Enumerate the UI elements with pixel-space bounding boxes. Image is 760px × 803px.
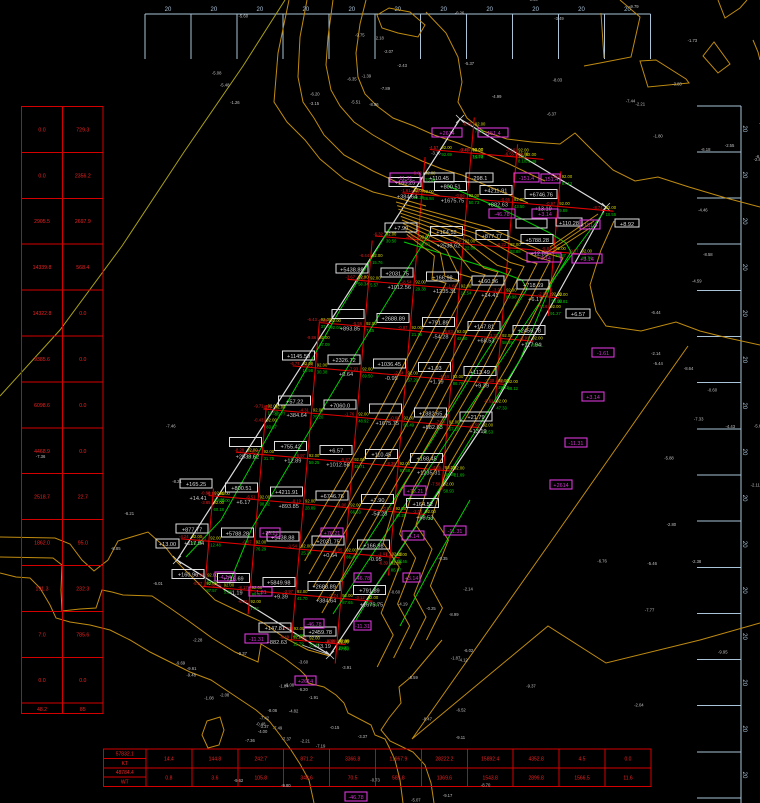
svg-text:1566.5: 1566.5 [574,776,590,782]
svg-text:12.54: 12.54 [461,291,472,296]
svg-text:-8.68: -8.68 [211,583,221,588]
svg-text:-9.79: -9.79 [629,4,639,9]
svg-text:-0.87: -0.87 [242,540,252,545]
svg-text:-6.35: -6.35 [347,76,357,81]
svg-text:20: 20 [741,449,747,456]
svg-text:47.33: 47.33 [496,406,507,411]
svg-text:144.8: 144.8 [209,757,222,763]
svg-text:-46.78: -46.78 [494,212,509,218]
svg-text:-6.85: -6.85 [318,318,328,323]
svg-text:-9.80: -9.80 [281,783,291,788]
svg-text:-8.19: -8.19 [291,498,301,503]
svg-text:5.57: 5.57 [370,283,379,288]
svg-text:105.8: 105.8 [255,776,268,782]
svg-text:92.00: 92.00 [532,336,543,341]
svg-text:+755.42: +755.42 [281,445,301,451]
svg-text:-4.05: -4.05 [333,548,343,553]
svg-text:-4.85: -4.85 [431,465,441,470]
svg-text:-6.44: -6.44 [651,310,661,315]
svg-text:-7.16: -7.16 [538,304,548,309]
svg-text:20: 20 [741,633,747,640]
svg-text:+1.93: +1.93 [428,366,442,372]
svg-text:-4.09: -4.09 [513,152,523,157]
svg-text:20: 20 [741,126,747,133]
svg-text:-9.37: -9.37 [526,683,536,688]
svg-text:92.00: 92.00 [317,362,328,367]
svg-text:-5.48: -5.48 [220,83,230,88]
svg-text:98.32: 98.32 [260,501,271,506]
svg-text:-1.15: -1.15 [384,552,394,557]
svg-text:92.00: 92.00 [247,448,258,453]
svg-text:58.39: 58.39 [502,340,513,345]
svg-text:-2.14: -2.14 [651,351,661,356]
svg-text:14339.8: 14339.8 [33,265,52,271]
svg-text:29.38: 29.38 [415,287,426,292]
svg-text:-7.89: -7.89 [381,86,391,91]
svg-text:-4.82: -4.82 [289,708,299,713]
svg-text:-5.07: -5.07 [411,798,421,803]
svg-text:86.76: 86.76 [453,381,464,386]
svg-text:-9.48: -9.48 [186,672,196,677]
svg-text:-6.83: -6.83 [443,329,453,334]
svg-text:48.2: 48.2 [37,707,47,713]
svg-text:92.00: 92.00 [414,188,425,193]
svg-text:+6.57: +6.57 [329,449,343,455]
svg-text:-3.15: -3.15 [310,101,320,106]
svg-text:20: 20 [741,587,747,594]
svg-text:-2.04: -2.04 [634,702,644,707]
svg-text:+882.63: +882.63 [488,202,508,208]
svg-text:-0.87: -0.87 [398,325,408,330]
svg-text:-1.49: -1.49 [451,238,461,243]
svg-text:31.75: 31.75 [264,456,275,461]
svg-text:+164.52: +164.52 [413,502,433,508]
svg-text:92.00: 92.00 [309,636,320,641]
svg-text:-1.91: -1.91 [309,695,319,700]
svg-text:-8.54: -8.54 [402,280,412,285]
svg-text:-2.08: -2.08 [220,693,230,698]
svg-text:-6.21: -6.21 [125,511,135,516]
svg-text:-0.43: -0.43 [254,418,264,423]
svg-text:0.0: 0.0 [79,403,86,409]
svg-text:0.8: 0.8 [165,776,172,782]
svg-text:74.83: 74.83 [472,154,484,159]
svg-text:92.00: 92.00 [301,544,312,549]
svg-text:-6.75: -6.75 [462,122,472,127]
svg-text:+160.96: +160.96 [478,279,498,285]
svg-text:-4.31: -4.31 [299,408,309,413]
svg-text:-4.00: -4.00 [337,502,347,507]
svg-text:-9.11: -9.11 [456,735,466,740]
svg-text:-11.31: -11.31 [398,176,413,182]
svg-text:22.88: 22.88 [465,245,476,250]
svg-text:92.00: 92.00 [443,482,454,487]
svg-text:20: 20 [741,772,747,779]
svg-text:+2614: +2614 [553,483,568,489]
svg-text:92.00: 92.00 [562,174,573,179]
svg-text:92.00: 92.00 [415,280,426,285]
svg-text:-2.11: -2.11 [751,482,760,487]
svg-text:-151.4: -151.4 [543,177,558,183]
svg-text:-6.31: -6.31 [238,599,248,604]
svg-text:+2688.89: +2688.89 [381,317,405,323]
svg-text:+12.89: +12.89 [284,459,301,465]
svg-text:+165.25: +165.25 [186,482,206,488]
svg-text:-8.56: -8.56 [470,423,480,428]
svg-text:-6.52: -6.52 [456,707,466,712]
svg-text:-4.14: -4.14 [219,575,231,581]
svg-text:+68.53: +68.53 [416,516,433,522]
svg-text:-8.17: -8.17 [238,585,248,590]
svg-text:+0.64: +0.64 [339,372,353,378]
svg-text:-6.74: -6.74 [290,361,300,366]
svg-text:20: 20 [741,172,747,179]
svg-text:-5.61: -5.61 [754,423,760,428]
svg-text:0.0: 0.0 [38,173,45,179]
svg-text:92.00: 92.00 [496,399,507,404]
svg-text:4352.8: 4352.8 [528,757,544,763]
svg-text:-9.61: -9.61 [187,666,197,671]
svg-text:92.00: 92.00 [362,366,373,371]
svg-text:-5.34: -5.34 [439,374,449,379]
svg-text:-2.38: -2.38 [692,559,702,564]
svg-text:21.18: 21.18 [412,332,423,337]
svg-text:92.00: 92.00 [251,599,262,604]
svg-text:-5.87: -5.87 [341,457,351,462]
svg-text:11967.9: 11967.9 [390,757,408,763]
svg-text:-8.52: -8.52 [495,379,505,384]
svg-text:+117.94: +117.94 [184,541,204,547]
svg-text:+110.45: +110.45 [371,453,391,459]
svg-text:-1.39: -1.39 [362,73,372,78]
svg-text:10.55: 10.55 [606,212,617,217]
svg-text:92.00: 92.00 [557,292,568,297]
svg-text:-5.88: -5.88 [664,455,674,460]
svg-text:-8.64: -8.64 [684,366,694,371]
svg-text:20: 20 [303,7,310,13]
svg-text:-9.62: -9.62 [234,778,244,783]
svg-text:-7.15: -7.15 [441,466,451,471]
svg-text:20: 20 [578,7,585,13]
svg-text:568.4: 568.4 [76,265,89,271]
svg-text:47.09: 47.09 [319,342,330,347]
svg-text:92.00: 92.00 [207,572,218,577]
svg-text:-5.46: -5.46 [647,561,657,566]
svg-text:20: 20 [348,7,355,13]
svg-text:-0.97: -0.97 [546,201,556,206]
svg-text:56.77: 56.77 [275,411,286,416]
svg-text:2899.8: 2899.8 [528,776,544,782]
svg-text:59.25: 59.25 [309,460,320,465]
svg-text:-9.49: -9.49 [280,634,290,639]
svg-text:+13.00: +13.00 [159,542,176,548]
svg-text:-151.4: -151.4 [519,176,534,182]
svg-text:+1675.75: +1675.75 [376,421,400,427]
svg-text:-3.26: -3.26 [493,288,503,293]
svg-text:+6.57: +6.57 [571,312,585,318]
svg-text:+4211.91: +4211.91 [275,490,298,496]
svg-text:-6.51: -6.51 [246,494,256,499]
svg-text:+110.45: +110.45 [429,176,449,182]
svg-text:92.00: 92.00 [303,361,314,366]
svg-text:-4.99: -4.99 [492,94,502,99]
svg-text:57.29: 57.29 [408,377,419,382]
svg-text:+6746.76: +6746.76 [320,494,344,500]
svg-text:-6.44: -6.44 [360,253,370,258]
svg-text:92.00: 92.00 [266,418,277,423]
svg-text:-2.80: -2.80 [667,522,677,527]
svg-text:25.27: 25.27 [301,551,312,556]
svg-text:7.15: 7.15 [366,328,375,333]
svg-text:-2.80: -2.80 [754,157,760,162]
svg-text:92.00: 92.00 [526,152,537,157]
svg-text:92.00: 92.00 [419,234,430,239]
svg-text:92.69: 92.69 [441,152,452,157]
svg-text:92.00: 92.00 [457,329,468,334]
svg-text:+68.53: +68.53 [477,338,494,344]
svg-text:+5788.28: +5788.28 [226,531,250,537]
svg-text:58.93: 58.93 [443,489,454,494]
svg-text:-5.37: -5.37 [465,61,475,66]
svg-text:232.3: 232.3 [76,587,89,593]
svg-text:92.00: 92.00 [370,276,381,281]
svg-text:92.00: 92.00 [372,253,383,258]
svg-text:92.00: 92.00 [313,408,324,413]
svg-text:20: 20 [440,7,447,13]
svg-text:+877.77: +877.77 [182,527,202,533]
svg-text:+1012.56: +1012.56 [387,285,411,291]
svg-text:92.00: 92.00 [397,552,408,557]
svg-text:+21.79: +21.79 [467,415,484,421]
svg-text:+76.21: +76.21 [262,531,279,537]
svg-text:-8.85: -8.85 [111,546,121,551]
svg-text:+7.90: +7.90 [394,226,408,232]
svg-text:1369.6: 1369.6 [437,776,453,782]
svg-text:-3.60: -3.60 [299,660,309,665]
svg-text:86.40: 86.40 [346,555,357,560]
svg-text:-8.99: -8.99 [449,612,459,617]
svg-text:-1.76: -1.76 [345,412,355,417]
svg-text:-46.78: -46.78 [348,795,363,801]
svg-text:6098.6: 6098.6 [34,403,50,409]
svg-text:5.40: 5.40 [339,645,348,650]
svg-text:58.34: 58.34 [358,282,369,287]
svg-text:0.0: 0.0 [79,449,86,455]
svg-text:-5.51: -5.51 [351,99,361,104]
svg-text:4.5: 4.5 [579,757,586,763]
svg-text:-7.36: -7.36 [36,454,46,459]
svg-text:-3.04: -3.04 [413,509,423,514]
svg-text:66.49: 66.49 [404,423,415,428]
svg-text:20: 20 [532,7,539,13]
svg-text:92.00: 92.00 [465,238,476,243]
svg-text:+882.63: +882.63 [422,425,442,431]
svg-text:-5.44: -5.44 [653,361,663,366]
svg-text:-2.97: -2.97 [283,589,293,594]
svg-text:+1882.65: +1882.65 [419,411,443,417]
svg-text:-4.43: -4.43 [726,424,736,429]
svg-text:92.00: 92.00 [469,193,480,198]
svg-text:2356.2: 2356.2 [75,173,91,179]
svg-text:20: 20 [257,7,264,13]
svg-text:92.00: 92.00 [423,189,434,194]
svg-text:+4211.91: +4211.91 [484,189,507,195]
svg-text:2518.7: 2518.7 [34,495,50,501]
svg-text:7.42: 7.42 [251,606,260,611]
svg-text:+384.64: +384.64 [287,413,307,419]
svg-text:16.98: 16.98 [303,368,314,373]
svg-text:+7.90: +7.90 [370,498,384,504]
svg-text:+5788.28: +5788.28 [525,238,549,244]
svg-text:-7.58: -7.58 [431,482,441,487]
svg-text:+1675.75: +1675.75 [360,602,384,608]
svg-text:+2614: +2614 [439,131,454,137]
svg-text:-6.18: -6.18 [701,147,711,152]
svg-text:+3.14: +3.14 [580,257,594,263]
svg-text:-3.32: -3.32 [489,333,499,338]
svg-text:92.00: 92.00 [260,494,271,499]
svg-text:-6.02: -6.02 [464,648,474,653]
svg-text:+2459.78: +2459.78 [308,630,332,636]
svg-text:-4.14: -4.14 [407,534,419,540]
svg-text:92.00: 92.00 [358,275,369,280]
svg-text:-2.28: -2.28 [193,638,203,643]
svg-text:86.07: 86.07 [391,568,402,573]
svg-text:95.0: 95.0 [78,541,88,547]
svg-text:92.00: 92.00 [510,242,521,247]
svg-text:87.57: 87.57 [206,588,217,593]
svg-text:+384.64: +384.64 [397,195,417,201]
svg-text:-8.61: -8.61 [484,399,494,404]
svg-text:+3.14: +3.14 [405,576,419,582]
svg-text:-1.68: -1.68 [447,284,457,289]
svg-text:+6.17: +6.17 [528,297,542,303]
svg-text:92.00: 92.00 [396,506,407,511]
svg-text:83.07: 83.07 [266,425,277,430]
svg-text:20: 20 [741,402,747,409]
svg-text:-5.57: -5.57 [193,581,203,586]
svg-text:92.00: 92.00 [366,321,377,326]
svg-text:+2326.72: +2326.72 [332,358,356,364]
svg-text:80.98: 80.98 [506,295,517,300]
svg-text:92.00: 92.00 [412,325,423,330]
svg-text:-54.28: -54.28 [433,334,449,340]
svg-text:20: 20 [165,7,172,13]
svg-text:20: 20 [211,7,218,13]
svg-text:69.50: 69.50 [362,373,373,378]
svg-text:92.00: 92.00 [192,534,203,539]
svg-text:0.0: 0.0 [625,757,632,763]
svg-text:-11.31: -11.31 [249,637,264,643]
svg-text:+2538.62: +2538.62 [437,244,461,250]
svg-text:-7.20: -7.20 [297,636,307,641]
svg-text:+5438.88: +5438.88 [340,267,364,273]
svg-text:30.38: 30.38 [317,369,328,374]
svg-text:+160.96: +160.96 [178,573,198,579]
svg-text:92.00: 92.00 [472,147,484,152]
svg-text:45.71: 45.71 [354,464,365,469]
svg-text:-0.66: -0.66 [500,197,510,202]
svg-text:-3.37: -3.37 [358,734,368,739]
svg-text:-2.21: -2.21 [636,102,646,107]
svg-text:-5.56: -5.56 [353,321,363,326]
svg-text:+57.22: +57.22 [286,399,303,405]
svg-text:-6.97: -6.97 [295,453,305,458]
svg-text:+117.94: +117.94 [521,342,541,348]
svg-text:+76.21: +76.21 [324,531,341,537]
svg-text:-6.20: -6.20 [326,638,336,643]
svg-text:-7.49: -7.49 [273,726,283,731]
svg-text:-7.77: -7.77 [645,607,655,612]
svg-text:+110.28: +110.28 [559,221,579,227]
svg-text:+168.45: +168.45 [417,457,437,463]
svg-text:+1145.59: +1145.59 [287,354,310,360]
svg-text:87.12: 87.12 [562,181,573,186]
svg-text:-11.31: -11.31 [355,624,370,630]
svg-text:-8.03: -8.03 [553,78,563,83]
svg-text:+9.39: +9.39 [274,595,288,601]
svg-text:-9.37: -9.37 [237,651,247,656]
svg-text:-9.75: -9.75 [355,33,365,38]
svg-text:-0.26: -0.26 [455,11,465,16]
svg-text:92.00: 92.00 [606,205,617,210]
svg-text:+9.39: +9.39 [475,384,489,390]
svg-text:-11.31: -11.31 [448,529,463,535]
svg-text:92.00: 92.00 [305,498,316,503]
svg-text:-1.80: -1.80 [653,134,663,139]
svg-text:87.65: 87.65 [342,600,353,605]
svg-text:92.00: 92.00 [559,201,570,206]
svg-text:-1.26: -1.26 [230,100,240,105]
svg-text:-8.50: -8.50 [207,491,217,496]
svg-text:-7.46: -7.46 [166,424,176,429]
svg-text:92.00: 92.00 [346,548,357,553]
svg-text:14.4: 14.4 [164,757,174,763]
svg-text:92.00: 92.00 [404,416,415,421]
svg-text:-6.20: -6.20 [310,91,320,96]
svg-text:+13.19: +13.19 [469,429,486,435]
svg-text:-9.69: -9.69 [176,661,186,666]
svg-text:46.25: 46.25 [396,513,407,518]
svg-text:-4.24: -4.24 [179,534,189,539]
svg-text:+147.81: +147.81 [474,325,494,331]
svg-text:-5.60: -5.60 [239,13,249,18]
svg-text:-1.61: -1.61 [597,351,609,357]
svg-text:92.00: 92.00 [425,509,436,514]
svg-text:92.00: 92.00 [475,122,486,127]
svg-text:-0.73: -0.73 [370,778,380,783]
svg-text:70.5: 70.5 [348,776,358,782]
svg-text:-151.4: -151.4 [582,223,597,229]
svg-text:92.00: 92.00 [368,595,379,600]
svg-text:-2.21: -2.21 [300,738,310,743]
svg-text:585.8: 585.8 [392,776,405,782]
svg-text:-4.00: -4.00 [258,729,268,734]
svg-text:-1.54: -1.54 [287,544,297,549]
svg-text:-8.21: -8.21 [172,479,182,484]
svg-text:-0.52: -0.52 [382,506,392,511]
svg-text:+3.14: +3.14 [586,395,600,401]
svg-text:-4.59: -4.59 [692,279,702,284]
svg-text:+3.14: +3.14 [537,256,551,262]
svg-text:871.2: 871.2 [300,757,313,763]
svg-text:-0.90: -0.90 [528,0,538,2]
svg-text:-7.93: -7.93 [349,366,359,371]
svg-text:+893.85: +893.85 [340,327,360,333]
svg-text:92.00: 92.00 [400,461,411,466]
svg-text:-3.12: -3.12 [355,595,365,600]
svg-text:-1.08: -1.08 [204,696,214,701]
